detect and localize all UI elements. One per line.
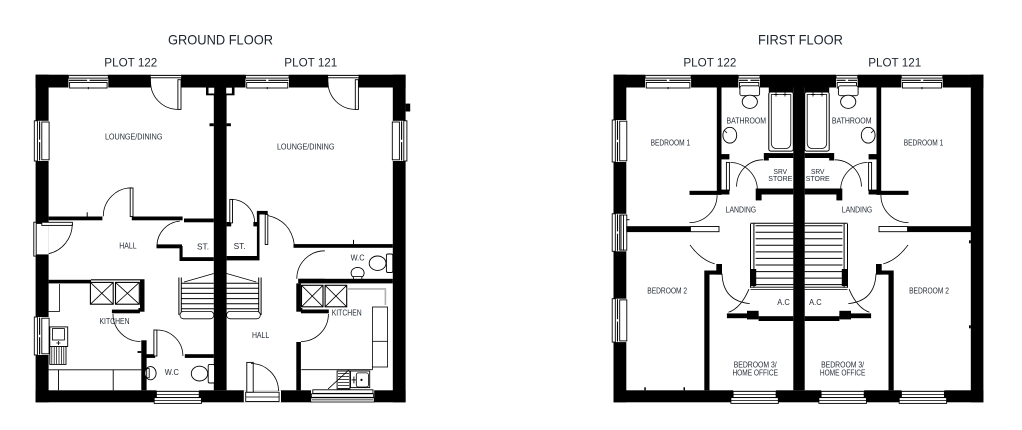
svg-text:LOUNGE/DINING: LOUNGE/DINING [277, 142, 335, 151]
svg-text:LANDING: LANDING [842, 206, 873, 215]
svg-text:GROUND FLOOR: GROUND FLOOR [168, 32, 273, 48]
svg-text:FIRST FLOOR: FIRST FLOOR [758, 32, 843, 48]
svg-text:BEDROOM 1: BEDROOM 1 [904, 138, 944, 147]
svg-text:A.C: A.C [777, 298, 790, 307]
svg-text:HALL: HALL [119, 242, 137, 251]
svg-text:PLOT 122: PLOT 122 [104, 56, 157, 70]
svg-text:STORE: STORE [768, 174, 792, 183]
svg-text:PLOT 121: PLOT 121 [868, 56, 921, 70]
svg-text:BEDROOM 1: BEDROOM 1 [651, 138, 691, 147]
svg-text:LOUNGE/DINING: LOUNGE/DINING [105, 133, 163, 142]
svg-text:STORE: STORE [806, 174, 830, 183]
svg-text:ST.: ST. [234, 242, 246, 251]
svg-text:HALL: HALL [252, 331, 270, 340]
svg-text:BATHROOM: BATHROOM [832, 117, 872, 126]
svg-text:W.C: W.C [165, 368, 179, 377]
svg-text:LANDING: LANDING [726, 206, 757, 215]
svg-text:KITCHEN: KITCHEN [100, 317, 130, 326]
svg-text:HOME OFFICE: HOME OFFICE [820, 369, 866, 378]
svg-text:A.C: A.C [809, 298, 822, 307]
svg-text:W.C: W.C [351, 254, 365, 263]
svg-text:HOME OFFICE: HOME OFFICE [732, 369, 778, 378]
svg-text:BEDROOM 2: BEDROOM 2 [647, 287, 687, 296]
svg-text:PLOT 121: PLOT 121 [284, 56, 337, 70]
svg-text:KITCHEN: KITCHEN [332, 309, 362, 318]
svg-text:ST.: ST. [197, 242, 209, 251]
svg-text:PLOT 122: PLOT 122 [683, 56, 736, 70]
svg-text:BATHROOM: BATHROOM [727, 117, 767, 126]
svg-text:BEDROOM 2: BEDROOM 2 [909, 287, 949, 296]
